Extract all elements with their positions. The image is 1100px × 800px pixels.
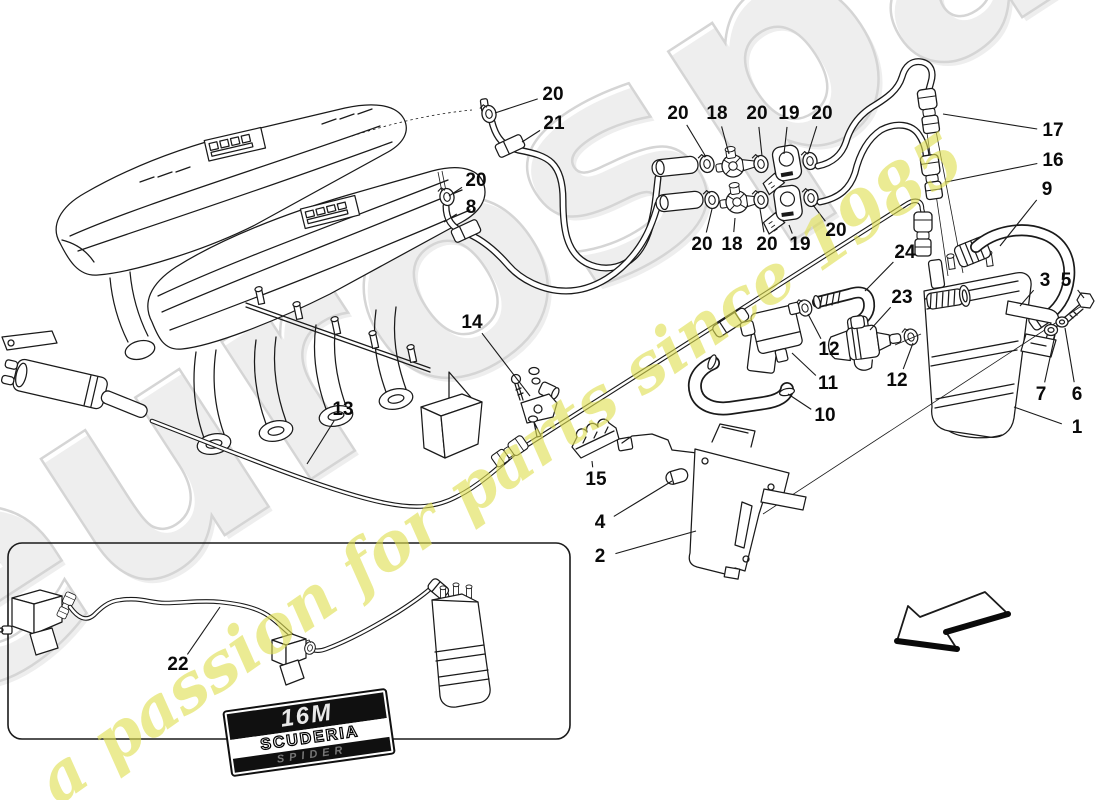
callout-10-24: 10 — [814, 405, 835, 427]
callout-19-12: 19 — [789, 234, 810, 256]
callout-23-20: 23 — [891, 287, 912, 309]
callout-20-13: 20 — [825, 220, 846, 242]
callout-14-25: 14 — [461, 312, 482, 334]
callout-8-3: 8 — [466, 197, 477, 219]
callout-7-30: 7 — [1036, 384, 1047, 406]
callout-16-15: 16 — [1042, 150, 1063, 172]
bolt-axis-line — [763, 303, 1086, 514]
callout-18-10: 18 — [721, 234, 742, 256]
callout-19-7: 19 — [778, 103, 799, 125]
washer-6 — [1056, 317, 1068, 327]
inset-canister — [432, 583, 490, 707]
callout-11-23: 11 — [818, 373, 838, 395]
solenoid-11 — [738, 302, 805, 374]
parts-diagram-page: eurospares eurospares — [0, 0, 1100, 800]
bracket-2 — [617, 424, 806, 579]
callout-13-26: 13 — [332, 399, 353, 421]
callout-12-21: 12 — [818, 339, 839, 361]
callout-4-28: 4 — [595, 512, 606, 534]
callout-2-29: 2 — [595, 546, 606, 568]
callout-21-1: 21 — [543, 113, 564, 135]
clamp-12-right — [901, 326, 919, 347]
callout-20-11: 20 — [756, 234, 777, 256]
callout-20-0: 20 — [542, 84, 563, 106]
callout-6-31: 6 — [1072, 384, 1083, 406]
inset-relay-mid — [272, 634, 306, 685]
direction-arrow — [897, 592, 1008, 649]
callout-20-8: 20 — [811, 103, 832, 125]
callout-20-4: 20 — [667, 103, 688, 125]
callout-20-2: 20 — [465, 170, 486, 192]
callout-22-33: 22 — [167, 654, 188, 676]
callout-1-32: 1 — [1072, 417, 1083, 439]
callout-20-9: 20 — [691, 234, 712, 256]
pipe-13-end-coupling — [914, 212, 932, 256]
washer-7 — [1045, 325, 1058, 336]
callout-3-17: 3 — [1040, 270, 1051, 292]
callout-9-16: 9 — [1042, 179, 1053, 201]
callout-15-27: 15 — [585, 469, 606, 491]
callout-20-6: 20 — [746, 103, 767, 125]
callout-18-5: 18 — [706, 103, 727, 125]
callout-5-18: 5 — [1061, 270, 1072, 292]
callout-12-22: 12 — [886, 370, 907, 392]
callout-24-19: 24 — [894, 242, 915, 264]
callout-17-14: 17 — [1042, 120, 1063, 142]
clip-15 — [572, 419, 619, 458]
